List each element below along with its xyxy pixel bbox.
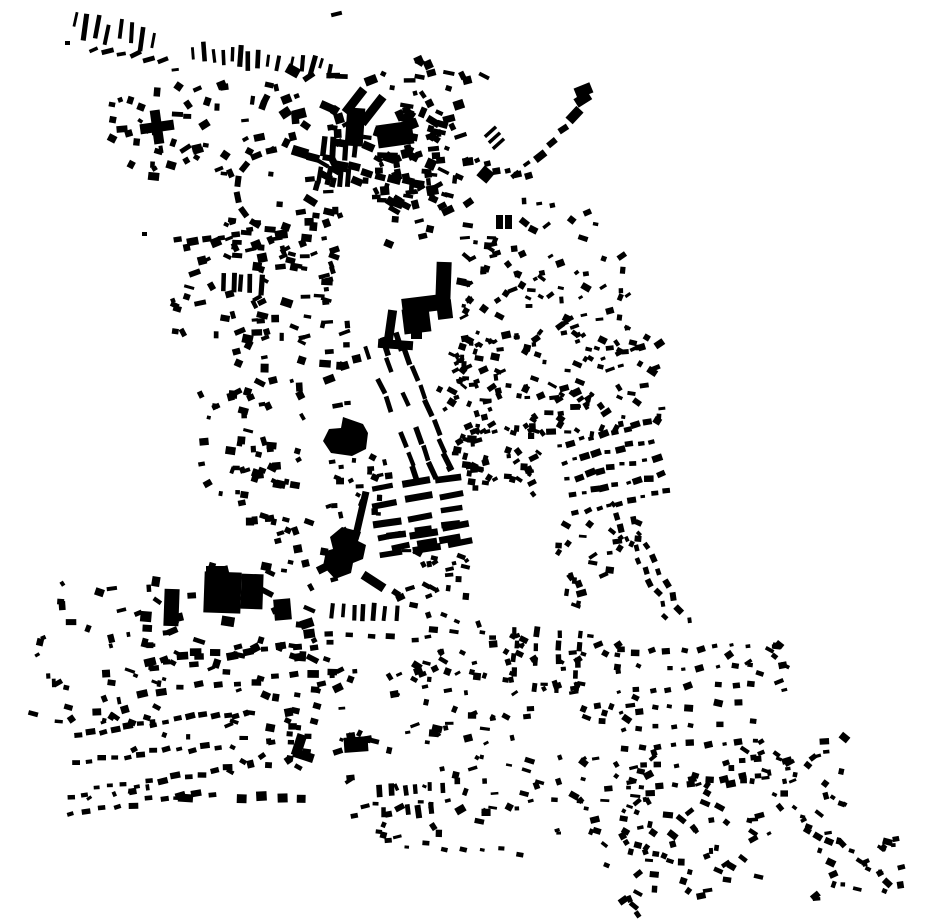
building	[352, 605, 357, 621]
building	[487, 420, 496, 428]
building	[436, 830, 442, 837]
building	[648, 828, 658, 838]
building	[242, 136, 249, 142]
building	[714, 845, 719, 852]
building	[320, 547, 329, 556]
building	[739, 758, 746, 763]
building	[636, 360, 643, 367]
building	[152, 703, 161, 711]
building	[428, 146, 439, 152]
building	[489, 635, 496, 639]
building	[385, 472, 393, 479]
town-core	[278, 63, 467, 210]
building	[514, 447, 523, 456]
rightfield-chain-1	[610, 501, 669, 621]
building	[664, 687, 671, 693]
building	[578, 631, 583, 639]
building	[703, 789, 712, 798]
building	[616, 690, 621, 694]
building	[261, 646, 268, 651]
building	[272, 693, 280, 702]
building	[594, 346, 601, 351]
building	[376, 512, 381, 516]
building	[462, 788, 469, 796]
building	[407, 512, 432, 523]
building	[136, 689, 148, 699]
building	[567, 215, 577, 225]
building	[519, 217, 530, 228]
building	[81, 808, 90, 815]
building	[524, 757, 535, 765]
building	[573, 670, 578, 679]
building	[524, 396, 530, 399]
building	[531, 683, 537, 692]
building	[882, 877, 893, 888]
building	[372, 483, 394, 492]
building	[647, 821, 653, 828]
building	[296, 621, 308, 628]
building	[445, 798, 452, 803]
building	[749, 778, 755, 784]
building	[137, 118, 143, 124]
z-building-right-foot	[436, 299, 453, 320]
building	[703, 888, 713, 893]
building	[652, 851, 659, 857]
building	[724, 650, 734, 660]
building	[422, 840, 429, 845]
building	[245, 51, 250, 71]
building	[619, 288, 624, 293]
building	[585, 399, 590, 407]
building	[232, 348, 241, 356]
building	[330, 672, 335, 678]
building	[594, 702, 602, 709]
building	[351, 354, 361, 364]
building	[276, 530, 284, 536]
building	[600, 255, 607, 262]
building	[246, 227, 253, 232]
building	[577, 405, 581, 408]
building	[453, 395, 459, 401]
building	[484, 242, 492, 250]
building	[275, 642, 286, 650]
pair-square-row	[237, 791, 306, 803]
building	[621, 808, 626, 813]
building	[605, 307, 614, 315]
building	[621, 727, 627, 732]
building	[501, 713, 510, 721]
building	[116, 51, 126, 56]
building	[789, 778, 797, 783]
building	[645, 790, 655, 796]
building	[257, 636, 265, 644]
building	[862, 861, 868, 867]
terrace-fan-top-left	[73, 12, 156, 52]
building	[389, 85, 395, 90]
building	[326, 640, 333, 645]
building	[474, 355, 483, 362]
building	[785, 767, 791, 771]
building	[559, 296, 564, 303]
building	[713, 867, 723, 875]
building	[368, 453, 377, 461]
building	[277, 793, 287, 802]
building	[558, 286, 564, 290]
building	[624, 441, 633, 448]
building	[713, 699, 723, 708]
building	[534, 351, 542, 358]
building	[465, 296, 473, 303]
building	[597, 402, 605, 411]
building	[660, 852, 667, 859]
building	[577, 798, 584, 803]
building	[772, 792, 778, 797]
building	[144, 795, 152, 800]
building	[619, 462, 624, 465]
building	[596, 506, 603, 512]
building	[555, 640, 561, 650]
building	[618, 364, 624, 368]
building	[632, 687, 639, 692]
building	[85, 728, 95, 735]
building	[580, 705, 588, 713]
building	[645, 858, 653, 862]
blob-south-ne-fabric	[391, 547, 470, 602]
building	[325, 349, 334, 354]
midbottom-edge-row	[384, 838, 523, 858]
building	[757, 738, 764, 745]
building	[234, 191, 242, 203]
building	[428, 782, 432, 791]
building	[546, 428, 556, 434]
building	[255, 50, 261, 69]
building	[519, 790, 529, 797]
building	[173, 715, 182, 721]
building	[619, 711, 624, 715]
rightfield-grid	[557, 418, 670, 516]
building	[589, 431, 594, 437]
wedge-east	[725, 732, 850, 844]
building	[414, 74, 425, 80]
building	[290, 481, 301, 489]
building	[94, 587, 105, 597]
building	[375, 167, 383, 173]
building	[824, 837, 835, 846]
building	[306, 653, 320, 664]
building	[294, 692, 301, 697]
building	[533, 276, 538, 281]
building	[67, 811, 74, 817]
building	[301, 234, 312, 243]
building	[406, 452, 415, 467]
building	[621, 714, 632, 724]
building	[299, 413, 306, 421]
building	[604, 450, 610, 454]
building	[124, 755, 132, 761]
building	[598, 483, 609, 492]
building	[284, 707, 294, 717]
terrace-dash-curve	[89, 46, 179, 71]
building	[418, 384, 427, 399]
building	[372, 195, 381, 200]
building	[63, 685, 70, 691]
building	[524, 172, 533, 180]
building	[600, 356, 606, 361]
building	[683, 681, 694, 690]
building	[652, 724, 658, 729]
building	[176, 652, 188, 660]
building	[74, 732, 82, 738]
building	[310, 644, 319, 651]
building	[230, 311, 237, 320]
building	[235, 490, 240, 494]
building	[757, 750, 765, 757]
building	[673, 604, 684, 615]
building	[253, 133, 265, 142]
building	[286, 731, 292, 736]
building	[615, 501, 623, 508]
building	[471, 661, 477, 666]
building	[639, 744, 647, 751]
building	[382, 606, 388, 621]
building	[231, 713, 240, 720]
building	[149, 643, 155, 646]
building	[580, 313, 587, 317]
building	[654, 762, 661, 768]
building	[767, 769, 772, 776]
building	[162, 677, 167, 681]
building	[482, 672, 488, 679]
building	[238, 406, 249, 415]
building	[421, 169, 431, 175]
building	[469, 382, 478, 387]
building	[438, 656, 448, 665]
building	[370, 603, 376, 621]
building	[467, 478, 475, 486]
building	[384, 396, 394, 413]
building	[380, 821, 386, 828]
building	[608, 527, 617, 535]
building	[332, 207, 338, 215]
crescent-row-2	[72, 742, 222, 765]
building	[424, 634, 431, 639]
building	[822, 792, 829, 800]
building	[280, 297, 294, 308]
building	[429, 729, 439, 737]
building	[36, 638, 44, 647]
building	[632, 397, 642, 406]
building	[237, 45, 244, 67]
stray-dot-2	[142, 232, 147, 236]
building	[504, 426, 510, 432]
building	[824, 831, 832, 835]
building	[561, 667, 566, 671]
building	[630, 794, 640, 798]
building	[712, 644, 718, 649]
building	[729, 643, 734, 647]
building	[542, 360, 546, 365]
building	[326, 73, 340, 79]
building	[301, 559, 310, 568]
building	[133, 673, 139, 678]
building	[633, 869, 643, 879]
building	[271, 315, 279, 323]
building	[34, 652, 40, 657]
building	[289, 323, 299, 331]
building	[533, 149, 547, 163]
building	[687, 617, 692, 623]
building	[420, 561, 427, 568]
building	[590, 448, 602, 458]
building	[633, 889, 643, 897]
building	[124, 667, 135, 674]
building	[536, 202, 542, 206]
building	[494, 387, 502, 394]
building	[231, 231, 240, 238]
building	[704, 741, 714, 749]
building	[250, 96, 255, 105]
building	[223, 253, 232, 260]
building	[666, 858, 674, 864]
building	[329, 459, 336, 464]
building	[266, 444, 274, 453]
building	[377, 152, 388, 158]
building	[103, 24, 111, 45]
building	[670, 592, 677, 601]
building	[674, 763, 680, 768]
building	[252, 262, 262, 272]
building	[233, 643, 242, 650]
building	[504, 446, 512, 454]
building	[67, 795, 75, 800]
building	[157, 680, 162, 687]
building	[876, 869, 884, 877]
building	[323, 320, 333, 324]
building	[853, 886, 862, 892]
building	[383, 239, 394, 249]
building	[268, 171, 274, 176]
wedge-sw	[568, 749, 657, 836]
building	[344, 321, 350, 329]
building	[102, 670, 110, 678]
building	[442, 406, 448, 412]
building	[656, 470, 666, 479]
building	[126, 632, 130, 637]
building	[626, 786, 631, 790]
building	[592, 827, 601, 835]
building	[321, 236, 327, 241]
building	[480, 727, 490, 732]
building	[435, 109, 443, 116]
building	[661, 613, 669, 621]
l-outline-corner-block	[411, 329, 422, 339]
left-dots-cluster	[198, 461, 251, 506]
building	[318, 58, 324, 69]
building	[731, 663, 739, 669]
building	[555, 778, 562, 786]
building	[582, 491, 587, 494]
building	[398, 431, 409, 448]
building	[557, 124, 569, 135]
building	[323, 374, 336, 385]
building	[515, 806, 520, 810]
building	[502, 648, 509, 655]
building	[601, 649, 610, 657]
building	[382, 459, 387, 466]
building	[108, 102, 115, 108]
building	[310, 717, 319, 725]
building	[280, 333, 284, 341]
building	[588, 552, 598, 560]
building	[630, 345, 639, 352]
building	[506, 763, 512, 767]
building	[120, 782, 127, 787]
building	[264, 226, 275, 233]
building	[800, 814, 806, 819]
building	[460, 383, 467, 390]
building	[116, 697, 121, 705]
building	[386, 747, 393, 755]
building	[282, 517, 290, 523]
building	[129, 22, 134, 43]
building	[300, 120, 311, 131]
building	[568, 492, 576, 498]
building	[521, 384, 530, 393]
blob-building-north	[323, 417, 368, 456]
building	[421, 445, 430, 462]
building	[422, 784, 427, 788]
building	[574, 270, 580, 276]
building	[639, 382, 649, 388]
building	[556, 831, 561, 834]
building	[555, 258, 565, 268]
building	[198, 711, 208, 718]
building	[276, 201, 283, 207]
building	[348, 478, 354, 484]
building	[652, 704, 659, 710]
building	[379, 162, 385, 168]
building	[343, 342, 350, 347]
building	[234, 682, 241, 687]
building	[278, 106, 292, 120]
building	[555, 543, 562, 549]
building	[605, 566, 614, 574]
building	[472, 348, 478, 355]
building	[173, 81, 184, 92]
building	[456, 553, 466, 561]
building	[583, 271, 589, 276]
building	[592, 756, 600, 760]
building	[891, 843, 896, 847]
building	[426, 225, 435, 233]
building	[314, 294, 325, 298]
building	[487, 236, 496, 240]
building	[579, 535, 587, 538]
building	[452, 99, 465, 111]
rightfield-c	[574, 326, 666, 438]
building	[748, 835, 759, 844]
building	[443, 688, 452, 693]
building	[601, 709, 608, 716]
building	[258, 752, 267, 760]
building	[411, 199, 420, 209]
building	[630, 420, 641, 429]
building	[694, 664, 704, 673]
building	[291, 108, 307, 121]
building	[435, 474, 462, 484]
building	[813, 897, 821, 901]
building	[754, 812, 765, 820]
